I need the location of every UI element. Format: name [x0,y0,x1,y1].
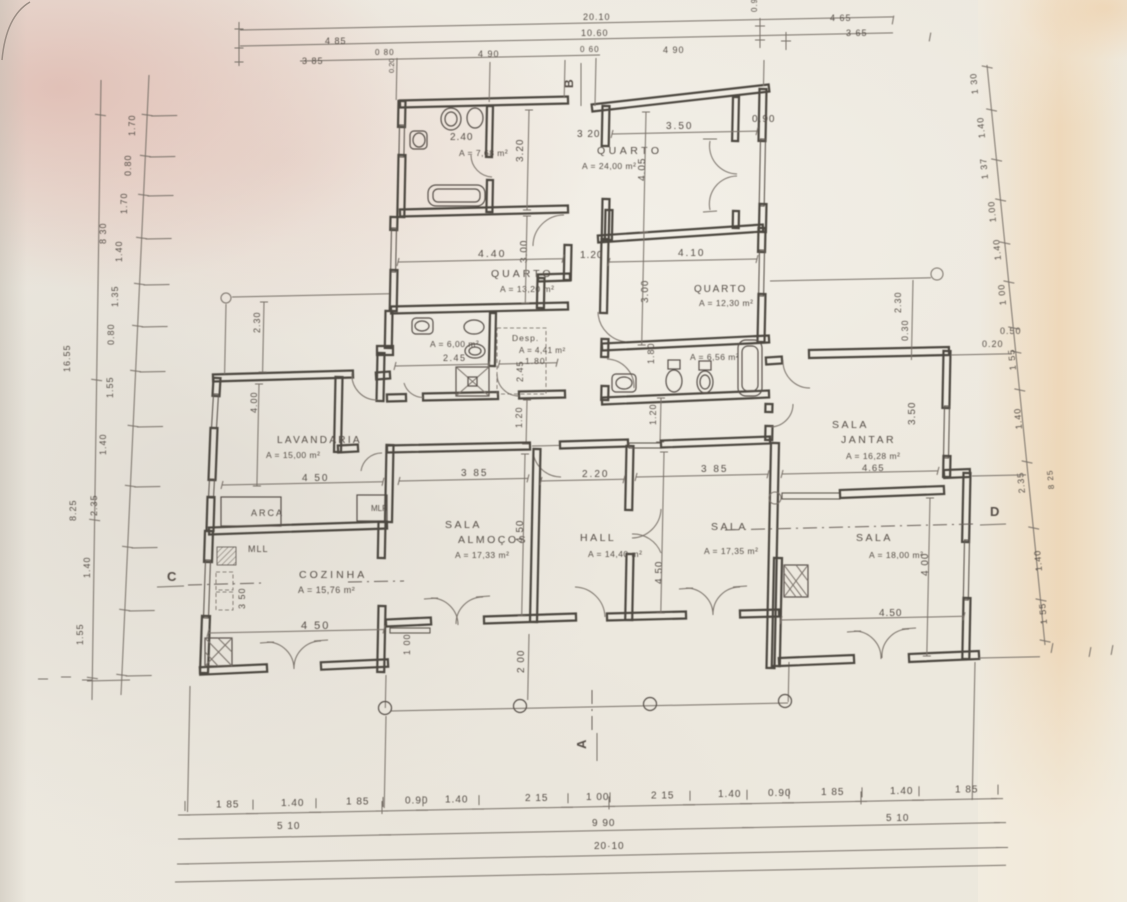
svg-text:1.20: 1.20 [648,403,658,425]
svg-text:A: A [574,739,589,749]
svg-text:2 15: 2 15 [651,791,674,802]
svg-text:4.05: 4.05 [637,158,648,181]
svg-text:COZINHA: COZINHA [299,569,367,581]
svg-text:1.35: 1.35 [110,285,120,307]
svg-text:MLL: MLL [248,544,269,554]
svg-text:2.35: 2.35 [89,494,99,516]
svg-text:1.20: 1.20 [514,406,524,428]
svg-text:SALA: SALA [856,532,893,544]
svg-text:5 10: 5 10 [886,813,909,824]
svg-text:0.20: 0.20 [387,58,396,73]
svg-text:4.10: 4.10 [678,248,705,259]
svg-text:20·10: 20·10 [594,841,625,852]
svg-text:D: D [990,504,999,519]
svg-text:3 85: 3 85 [701,464,728,475]
svg-text:1.40: 1.40 [82,556,92,578]
svg-text:0.80: 0.80 [106,323,116,345]
svg-text:9 90: 9 90 [592,818,615,829]
svg-text:3 85: 3 85 [461,468,488,479]
svg-text:2 15: 2 15 [525,793,548,804]
svg-text:0 80: 0 80 [375,48,395,57]
svg-text:1 55: 1 55 [1006,348,1018,370]
svg-text:0.90: 0.90 [768,788,791,799]
svg-text:8 30: 8 30 [98,222,108,244]
svg-text:10.60: 10.60 [581,28,609,38]
svg-text:SALA: SALA [711,521,748,533]
svg-text:1.40: 1.40 [1012,407,1024,429]
svg-text:Desp.: Desp. [512,333,539,343]
svg-text:4 00: 4 00 [920,553,931,576]
svg-text:1.40: 1.40 [98,433,108,455]
svg-text:1.80: 1.80 [525,356,546,366]
svg-text:1 00: 1 00 [996,283,1008,305]
svg-text:1 30: 1 30 [968,72,980,94]
svg-text:0.90: 0.90 [405,796,428,807]
svg-text:4 50: 4 50 [654,561,665,584]
svg-text:20.10: 20.10 [583,12,611,22]
svg-text:1 85: 1 85 [216,799,239,810]
svg-text:JANTAR: JANTAR [841,434,896,446]
svg-text:0 60: 0 60 [580,45,600,54]
svg-text:2.40: 2.40 [450,132,473,143]
svg-text:1.20: 1.20 [580,250,603,261]
svg-text:0.20: 0.20 [982,339,1004,349]
svg-text:1 85: 1 85 [955,785,978,796]
svg-text:1.40: 1.40 [975,116,987,138]
svg-text:4 90: 4 90 [478,49,500,59]
svg-text:4.40: 4.40 [478,248,506,260]
svg-text:16.55: 16.55 [62,344,72,372]
svg-text:A = 16,28 m²: A = 16,28 m² [846,451,900,461]
svg-text:5 10: 5 10 [277,821,300,832]
svg-text:0.80: 0.80 [123,154,133,176]
svg-text:A = 6,00 m²: A = 6,00 m² [430,339,479,349]
svg-text:1 37: 1 37 [978,157,990,179]
svg-text:3 65: 3 65 [846,28,868,38]
svg-text:3.20: 3.20 [515,139,526,162]
svg-text:1 85: 1 85 [346,797,369,808]
svg-text:A = 15,76 m²: A = 15,76 m² [298,585,355,595]
svg-text:A = 7,68 m²: A = 7,68 m² [459,148,508,158]
svg-text:2.45: 2.45 [443,353,467,363]
svg-text:HALL: HALL [580,532,616,544]
svg-text:1.80: 1.80 [646,342,656,364]
svg-text:QUARTO: QUARTO [597,145,663,157]
svg-text:4 90: 4 90 [663,45,685,55]
svg-text:4.00: 4.00 [249,391,259,413]
svg-text:8.25: 8.25 [68,499,78,521]
svg-text:A = 13,20 m²: A = 13,20 m² [500,284,554,294]
svg-text:4 50: 4 50 [515,520,526,543]
svg-text:1.40: 1.40 [991,238,1003,260]
svg-text:8 25: 8 25 [1045,469,1056,489]
svg-text:A = 14,40 m²: A = 14,40 m² [588,549,642,559]
svg-text:3 50: 3 50 [237,587,247,609]
svg-text:1.40: 1.40 [890,786,913,797]
svg-text:1 55: 1 55 [1037,602,1049,624]
svg-text:QUARTO: QUARTO [491,268,554,280]
svg-text:1.70: 1.70 [127,114,137,136]
svg-text:3 85: 3 85 [302,56,324,66]
svg-text:A = 12,30 m²: A = 12,30 m² [699,298,753,308]
svg-text:A = 6,56 m²: A = 6,56 m² [690,352,739,362]
svg-text:4 65: 4 65 [830,13,852,23]
svg-text:1.40: 1.40 [281,798,304,809]
svg-text:2.30: 2.30 [893,291,903,313]
svg-text:3.00: 3.00 [640,280,651,303]
svg-text:1.00: 1.00 [986,200,998,222]
svg-text:A = 4,41 m²: A = 4,41 m² [519,346,566,355]
svg-text:3.50: 3.50 [666,121,693,132]
svg-text:1.40: 1.40 [1032,549,1044,571]
svg-text:1.55: 1.55 [75,623,85,645]
svg-text:2 00: 2 00 [516,650,527,673]
svg-text:ARCA: ARCA [251,508,284,518]
svg-text:2.20: 2.20 [582,469,609,480]
svg-text:1.40: 1.40 [114,240,124,262]
svg-text:1 85: 1 85 [821,787,844,798]
svg-text:2.45: 2.45 [515,360,525,382]
svg-text:1.55: 1.55 [105,376,115,398]
svg-text:1.40: 1.40 [718,789,741,800]
svg-text:1.70: 1.70 [119,192,129,214]
svg-text:0.90: 0.90 [752,114,775,125]
svg-text:1 00: 1 00 [586,792,609,803]
svg-text:C: C [167,569,177,584]
svg-text:3 20: 3 20 [577,129,600,140]
svg-text:1.40: 1.40 [445,795,468,806]
svg-text:SALA: SALA [445,519,482,531]
svg-text:4 50: 4 50 [302,473,329,484]
svg-text:LAVANDARIA: LAVANDARIA [277,435,362,446]
svg-text:A = 15,00 m²: A = 15,00 m² [266,450,320,460]
svg-text:A = 24,00 m²: A = 24,00 m² [582,161,636,171]
svg-text:A = 17,35 m²: A = 17,35 m² [704,546,758,556]
svg-text:0.30: 0.30 [900,319,910,341]
svg-text:QUARTO: QUARTO [694,284,747,295]
svg-text:0.90: 0.90 [750,0,759,12]
svg-text:A = 18,00 m²: A = 18,00 m² [869,550,923,560]
svg-text:SALA: SALA [832,419,869,431]
svg-text:2.30: 2.30 [252,311,262,333]
svg-text:1 00: 1 00 [402,633,412,655]
svg-text:4 85: 4 85 [325,36,347,46]
svg-text:3.50: 3.50 [907,402,918,425]
svg-text:A = 17,33 m²: A = 17,33 m² [455,550,509,560]
